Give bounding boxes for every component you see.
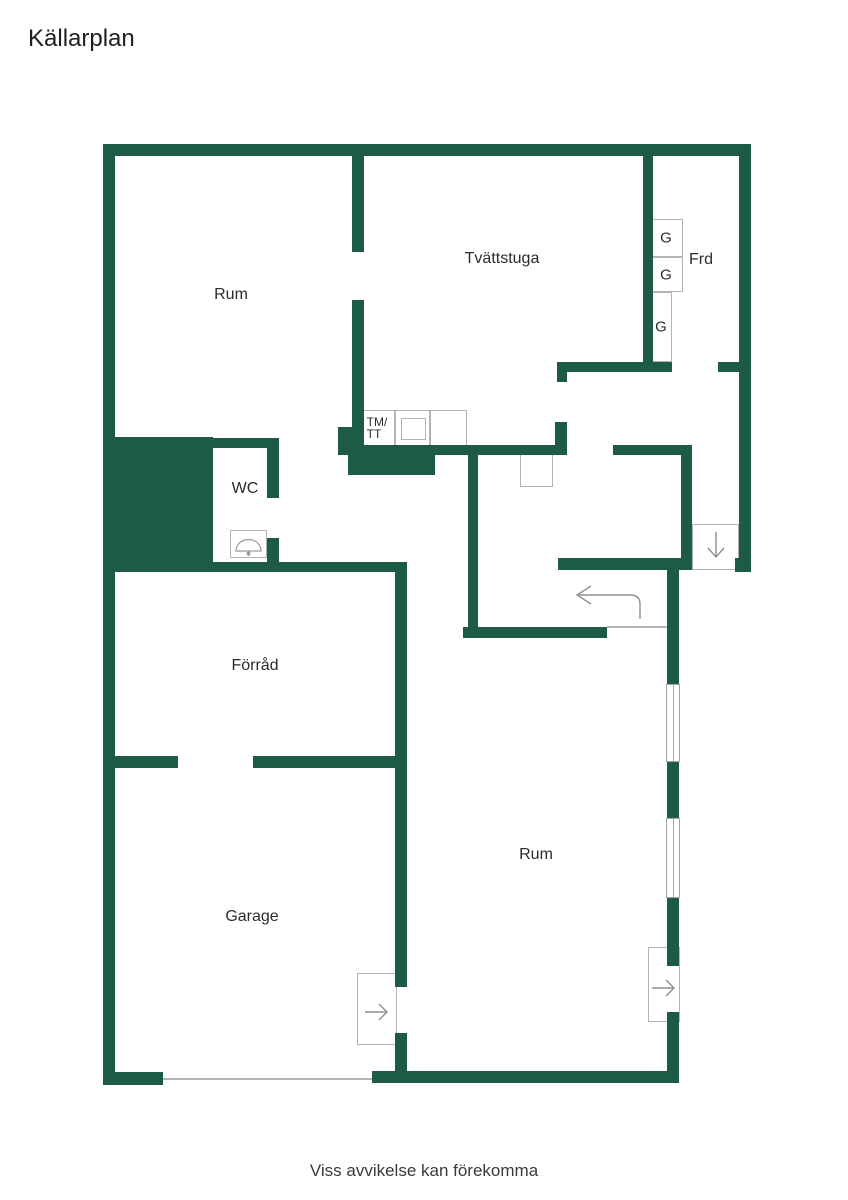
outer-wall-top — [103, 144, 751, 156]
forrad-bottom-wall-right — [253, 756, 407, 768]
hall-fixture-box — [520, 453, 553, 487]
room-label-forrad: Förråd — [231, 657, 278, 675]
outer-wall-bottom-garage — [103, 1072, 163, 1085]
rum-right-wall-b — [667, 762, 679, 818]
outer-wall-left — [103, 144, 115, 1085]
forrad-top-wall — [103, 562, 407, 572]
laundry-counter-stub — [555, 422, 567, 455]
outer-wall-bottom-main — [372, 1071, 679, 1083]
rum-right-wall-a — [667, 563, 679, 684]
rum-right-wall-c — [667, 898, 679, 966]
page-title: Källarplan — [28, 25, 135, 53]
window-2 — [666, 818, 680, 898]
forrad-bottom-wall-left — [113, 756, 178, 768]
wc-right-wall-upper — [267, 448, 279, 498]
counter-box — [430, 410, 467, 447]
curved-left-arrow-icon — [563, 582, 645, 622]
room-label-wc: WC — [232, 480, 259, 498]
rum-right-wall-d — [667, 1012, 679, 1083]
dryer-box — [395, 410, 430, 447]
hall-left-wall — [468, 452, 478, 637]
tvatt-frd-divider — [643, 144, 653, 363]
washer-label: TM/ TT — [367, 416, 388, 440]
right-arrow-icon — [650, 978, 678, 998]
right-arrow-icon — [363, 1002, 391, 1022]
down-arrow-icon — [704, 530, 728, 564]
forrad-right-wall-upper — [395, 562, 407, 987]
entry-down-arrow — [704, 530, 728, 564]
disclaimer-text: Viss avvikelse kan förekomma — [310, 1161, 538, 1181]
stair-block — [103, 437, 213, 562]
room-label-frd: Frd — [689, 251, 713, 269]
hall-threshold-line — [607, 626, 667, 628]
window-1 — [666, 684, 680, 762]
frd-bottom-wall — [557, 362, 672, 372]
forrad-right-wall-lower — [395, 1033, 407, 1083]
entry-corner-stub — [735, 558, 751, 572]
sink-icon — [231, 531, 266, 557]
dryer-drum — [401, 418, 426, 440]
floor-plan-page: Källarplan — [0, 0, 848, 1200]
room-label-tvattstuga: Tvättstuga — [465, 250, 540, 268]
room-door-arrow — [650, 978, 678, 998]
hall-curved-arrow — [563, 582, 645, 622]
laundry-counter-block — [348, 447, 435, 475]
outer-wall-right-upper — [739, 144, 751, 572]
hall-bottom-wall — [463, 627, 607, 638]
garage-opening-line — [163, 1078, 372, 1080]
wardrobe-label-1: G — [660, 230, 672, 247]
washer-label-line2: TT — [367, 428, 388, 440]
frd-bottom-right-stub — [718, 362, 739, 372]
rum-tvatt-divider-upper — [352, 144, 364, 252]
room-label-rum-upper: Rum — [214, 286, 248, 304]
room-label-garage: Garage — [225, 908, 278, 926]
frd-bottom-stub — [557, 362, 567, 382]
wardrobe-label-2: G — [660, 267, 672, 284]
wc-sink — [230, 530, 267, 558]
wardrobe-label-3: G — [655, 319, 667, 336]
wc-right-wall-lower — [267, 538, 279, 562]
hall-right-wall — [681, 445, 692, 563]
room-label-rum-lower: Rum — [519, 846, 553, 864]
rum-tvatt-divider-lower — [352, 300, 364, 428]
wc-top-wall — [213, 438, 279, 448]
garage-door-arrow — [363, 1002, 391, 1022]
